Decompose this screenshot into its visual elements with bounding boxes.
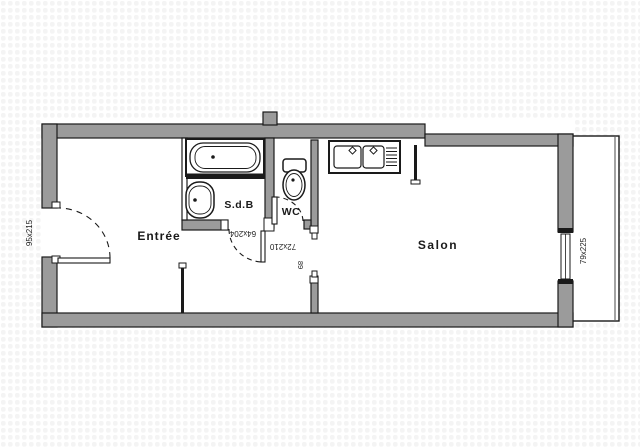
salon-opening-jamb-top <box>310 226 318 233</box>
bathtub-drain <box>211 155 215 159</box>
washbasin-fixture <box>186 182 214 218</box>
salon-window-dimension: 79x225 <box>579 237 588 264</box>
sdb-door-dimension: 64x204 <box>229 229 256 238</box>
kitchen-sink-fixture <box>329 141 400 173</box>
bathtub-fixture <box>186 139 265 179</box>
salon-room-label: Salon <box>418 238 458 252</box>
wc-room-label: WC <box>282 206 301 218</box>
hall-partition <box>181 265 184 313</box>
bottom-wall <box>42 313 573 327</box>
floor-plan-page: Entrée S.d.B WC Salon 95x215 64x204 72x2… <box>0 0 640 447</box>
salon-opening-tick-top <box>312 233 317 239</box>
kitchen-stub-wall <box>414 145 417 182</box>
right-wall-lower <box>558 281 573 327</box>
sdb-room-label: S.d.B <box>224 199 253 211</box>
kitchen-stub-cap <box>411 180 420 184</box>
wc-door-leaf <box>272 197 277 224</box>
floor-plan-canvas: Entrée S.d.B WC Salon 95x215 64x204 72x2… <box>0 0 640 447</box>
toilet-fixture <box>283 159 306 200</box>
window-sill-top <box>558 228 573 233</box>
wc-door-dimension: 72x210 <box>269 242 296 251</box>
entry-door-leaf <box>58 258 110 263</box>
hall-partition-cap <box>179 263 186 268</box>
washbasin-drain <box>193 198 197 202</box>
top-wall-left <box>42 124 425 138</box>
left-wall-upper <box>42 124 57 208</box>
entree-room-label: Entrée <box>137 229 180 243</box>
right-wall-upper <box>558 134 573 232</box>
salon-opening-dimension: 89 <box>296 261 305 269</box>
entry-jamb-top <box>52 202 60 208</box>
balcony <box>571 136 619 321</box>
entry-door-dimension: 95x215 <box>25 219 34 246</box>
salon-wall-upper <box>311 140 318 233</box>
sdb-door-leaf <box>261 231 265 262</box>
window-sill-bottom <box>558 279 573 284</box>
bathtub-apron <box>186 174 265 180</box>
sink-basin-left <box>334 146 361 168</box>
salon-opening-tick-bottom <box>312 271 317 277</box>
top-wall-right <box>425 134 573 146</box>
sdb-door-jamb <box>221 220 228 230</box>
top-wall-pillar <box>263 112 277 125</box>
